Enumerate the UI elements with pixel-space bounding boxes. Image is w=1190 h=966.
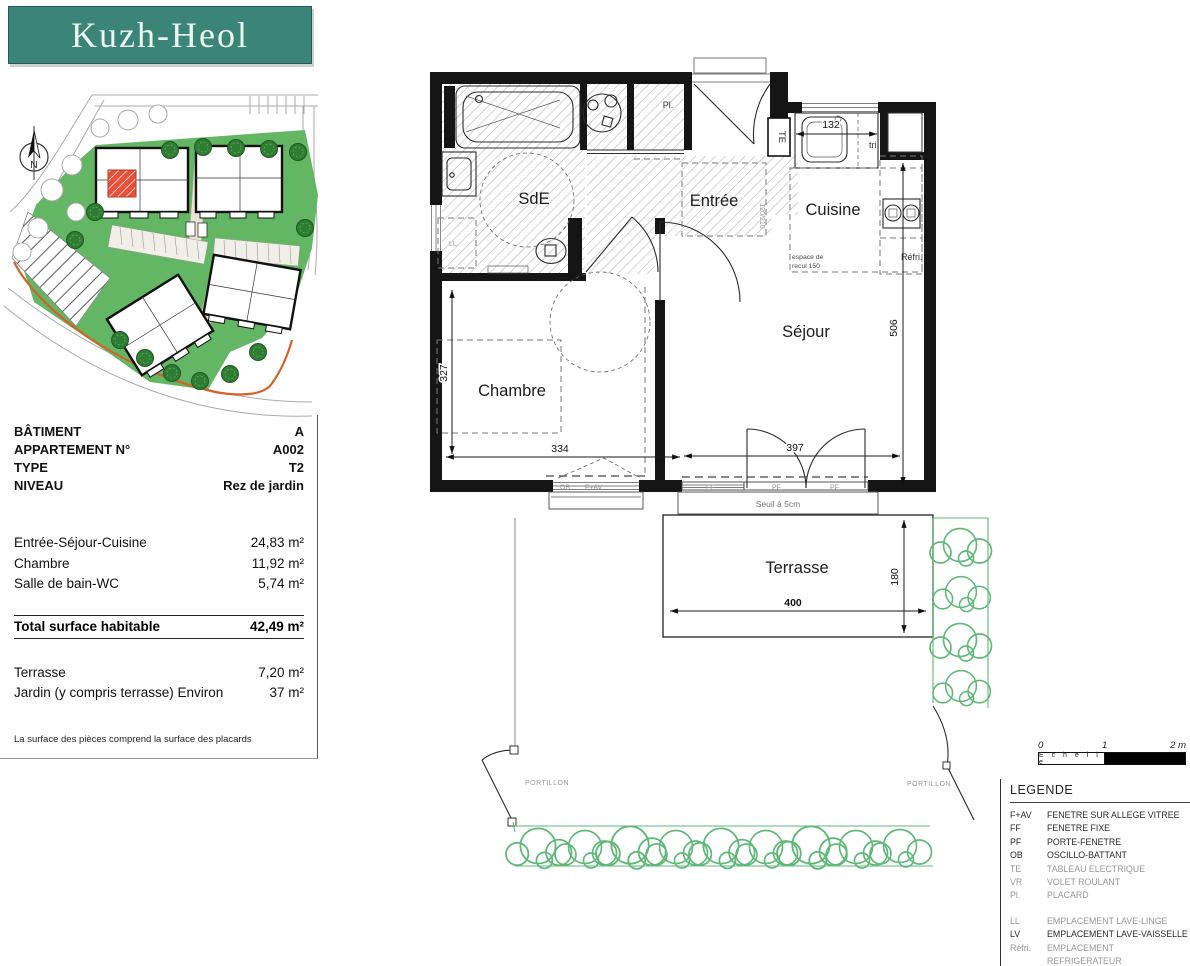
- surface-row: Entrée-Séjour-Cuisine 24,83 m²: [14, 533, 304, 554]
- info-value: Rez de jardin: [223, 477, 304, 495]
- electrical-panel: TE: [768, 118, 790, 156]
- svg-text:327: 327: [438, 364, 450, 382]
- site-plan: N: [4, 95, 318, 416]
- svg-text:506: 506: [888, 319, 900, 337]
- tri-label: tri: [869, 140, 877, 150]
- room-label-chambre: Chambre: [478, 382, 546, 400]
- surface-label: Chambre: [14, 554, 70, 575]
- room-label-sejour: Séjour: [782, 323, 830, 341]
- room-label-sde: SdE: [518, 190, 549, 208]
- refrigerator-label: Réfri.: [901, 252, 923, 262]
- storage-dim-label: 120/210: [758, 203, 765, 228]
- portillon-left: PORTILLON: [482, 746, 569, 826]
- info-row-niveau: NIVEAU Rez de jardin: [14, 477, 304, 495]
- surface-note: La surface des pièces comprend la surfac…: [14, 734, 304, 745]
- surface-label: Salle de bain-WC: [14, 574, 119, 595]
- surface-value: 24,83 m²: [251, 533, 304, 554]
- portillon-left-label: PORTILLON: [525, 780, 569, 787]
- scale-bar-label: E c h e l l e: [1039, 753, 1105, 764]
- legend-row: LV EMPLACEMENT LAVE-VAISSELLE: [1010, 928, 1190, 941]
- ll-label: LL.: [449, 241, 459, 248]
- ff-label: FF: [706, 485, 715, 492]
- logo: Kuzh-Heol: [8, 6, 312, 64]
- portillon-right: PORTILLON: [907, 706, 974, 820]
- legend-row: Réfri. EMPLACEMENT REFRIGERATEUR: [1010, 942, 1190, 966]
- info-label: BÂTIMENT: [14, 423, 81, 441]
- svg-text:397: 397: [786, 442, 804, 454]
- pf-label-1: PF: [772, 485, 781, 492]
- info-value: T2: [289, 459, 304, 477]
- exterior-rows: Terrasse 7,20 m² Jardin (y compris terra…: [14, 663, 304, 704]
- info-value: A: [295, 423, 304, 441]
- plan-sheet: N: [0, 0, 1190, 966]
- info-row-batiment: BÂTIMENT A: [14, 423, 304, 441]
- svg-text:180: 180: [889, 568, 901, 586]
- legend-row: LL EMPLACEMENT LAVE-LINGE: [1010, 915, 1190, 928]
- apartment-info-panel: BÂTIMENT A APPARTEMENT N° A002 TYPE T2 N…: [0, 415, 318, 759]
- legend-row: FF FENETRE FIXE: [1010, 822, 1190, 835]
- legend-row: OB OSCILLO-BATTANT: [1010, 849, 1190, 862]
- legend: LEGENDE F+AV FENETRE SUR ALLEGE VITREE F…: [1000, 779, 1190, 966]
- seuil-label: Seuil à 5cm: [756, 499, 800, 509]
- surface-rows: Entrée-Séjour-Cuisine 24,83 m² Chambre 1…: [14, 533, 304, 595]
- kitchen-window: [802, 102, 878, 113]
- scale-bar: 0 1 2 m E c h e l l e: [1038, 740, 1186, 765]
- surface-value: 37 m²: [269, 683, 304, 704]
- ff-window: FF: [682, 482, 744, 492]
- svg-text:400: 400: [784, 597, 802, 609]
- surface-value: 5,74 m²: [258, 574, 304, 595]
- scale-tick-2: 2 m: [1170, 740, 1186, 751]
- info-row-appartement: APPARTEMENT N° A002: [14, 441, 304, 459]
- surface-row: Jardin (y compris terrasse) Environ 37 m…: [14, 683, 304, 704]
- legend-row: Pl. PLACARD: [1010, 889, 1190, 902]
- info-label: TYPE: [14, 459, 48, 477]
- highlighted-unit: [108, 170, 136, 197]
- legend-row: TE TABLEAU ELECTRIQUE: [1010, 863, 1190, 876]
- dim-397: 397: [684, 442, 900, 456]
- info-label: NIVEAU: [14, 477, 63, 495]
- fav-label: F+AV: [585, 485, 603, 492]
- ob-label: OB: [560, 485, 570, 492]
- surface-label: Terrasse: [14, 663, 66, 684]
- legend-row: F+AV FENETRE SUR ALLEGE VITREE: [1010, 809, 1190, 822]
- svg-text:132: 132: [822, 119, 840, 131]
- hedge-right: [930, 529, 992, 706]
- chambre-turning-circle: [550, 272, 650, 372]
- chambre-window: OB F+AV: [546, 458, 648, 509]
- info-value: A002: [273, 441, 304, 459]
- scale-ticks: 0 1 2 m: [1038, 740, 1186, 752]
- surface-row: Salle de bain-WC 5,74 m²: [14, 574, 304, 595]
- surface-label: Jardin (y compris terrasse) Environ: [14, 683, 223, 704]
- surface-row: Terrasse 7,20 m²: [14, 663, 304, 684]
- terrasse: Terrasse 400 180: [663, 515, 933, 637]
- room-label-cuisine: Cuisine: [805, 201, 860, 219]
- info-label: APPARTEMENT N°: [14, 441, 130, 459]
- entrance-door: [692, 74, 770, 144]
- scale-tick-1: 1: [1102, 740, 1107, 751]
- surface-row: Chambre 11,92 m²: [14, 554, 304, 575]
- room-label-entree: Entrée: [690, 192, 739, 210]
- portillon-right-label: PORTILLON: [907, 781, 951, 788]
- faux-plafond-hatch: [442, 84, 798, 274]
- left-wall-window: [430, 205, 442, 251]
- scale-tick-0: 0: [1038, 740, 1043, 751]
- surface-value: 11,92 m²: [252, 554, 304, 575]
- recul-label-2: recul 150: [792, 263, 820, 270]
- seuil-box: Seuil à 5cm: [678, 492, 878, 514]
- te-label: TE: [776, 131, 787, 143]
- kitchen-side-counter: Réfri.: [880, 156, 923, 274]
- legend-row: VR VOLET ROULANT: [1010, 876, 1190, 889]
- info-row-type: TYPE T2: [14, 459, 304, 477]
- site-building-1: [96, 148, 188, 218]
- legend-row: PF PORTE-FENETRE: [1010, 836, 1190, 849]
- compass-n-label: N: [30, 160, 37, 171]
- surface-label: Entrée-Séjour-Cuisine: [14, 533, 147, 554]
- hedge-bottom: [506, 826, 932, 869]
- floor-plan: TE LL.: [430, 58, 992, 869]
- dim-132: 132: [796, 119, 877, 134]
- placard-label: Pl.: [663, 100, 674, 110]
- legend-title: LEGENDE: [1010, 783, 1190, 803]
- scale-bar-filled: [1105, 753, 1185, 764]
- pf-label-2: PF: [830, 485, 839, 492]
- recul-label-1: espace de: [792, 254, 824, 261]
- total-value: 42,49 m²: [250, 619, 304, 634]
- fridge-nook: [888, 113, 922, 152]
- entrance-landing: [694, 58, 766, 73]
- surface-value: 7,20 m²: [258, 663, 304, 684]
- total-label: Total surface habitable: [14, 619, 160, 634]
- scale-bar-body: E c h e l l e: [1038, 752, 1186, 765]
- logo-title: Kuzh-Heol: [71, 14, 249, 56]
- room-label-terrasse: Terrasse: [765, 559, 828, 577]
- svg-text:334: 334: [551, 443, 569, 455]
- total-surface-row: Total surface habitable 42,49 m²: [14, 615, 304, 639]
